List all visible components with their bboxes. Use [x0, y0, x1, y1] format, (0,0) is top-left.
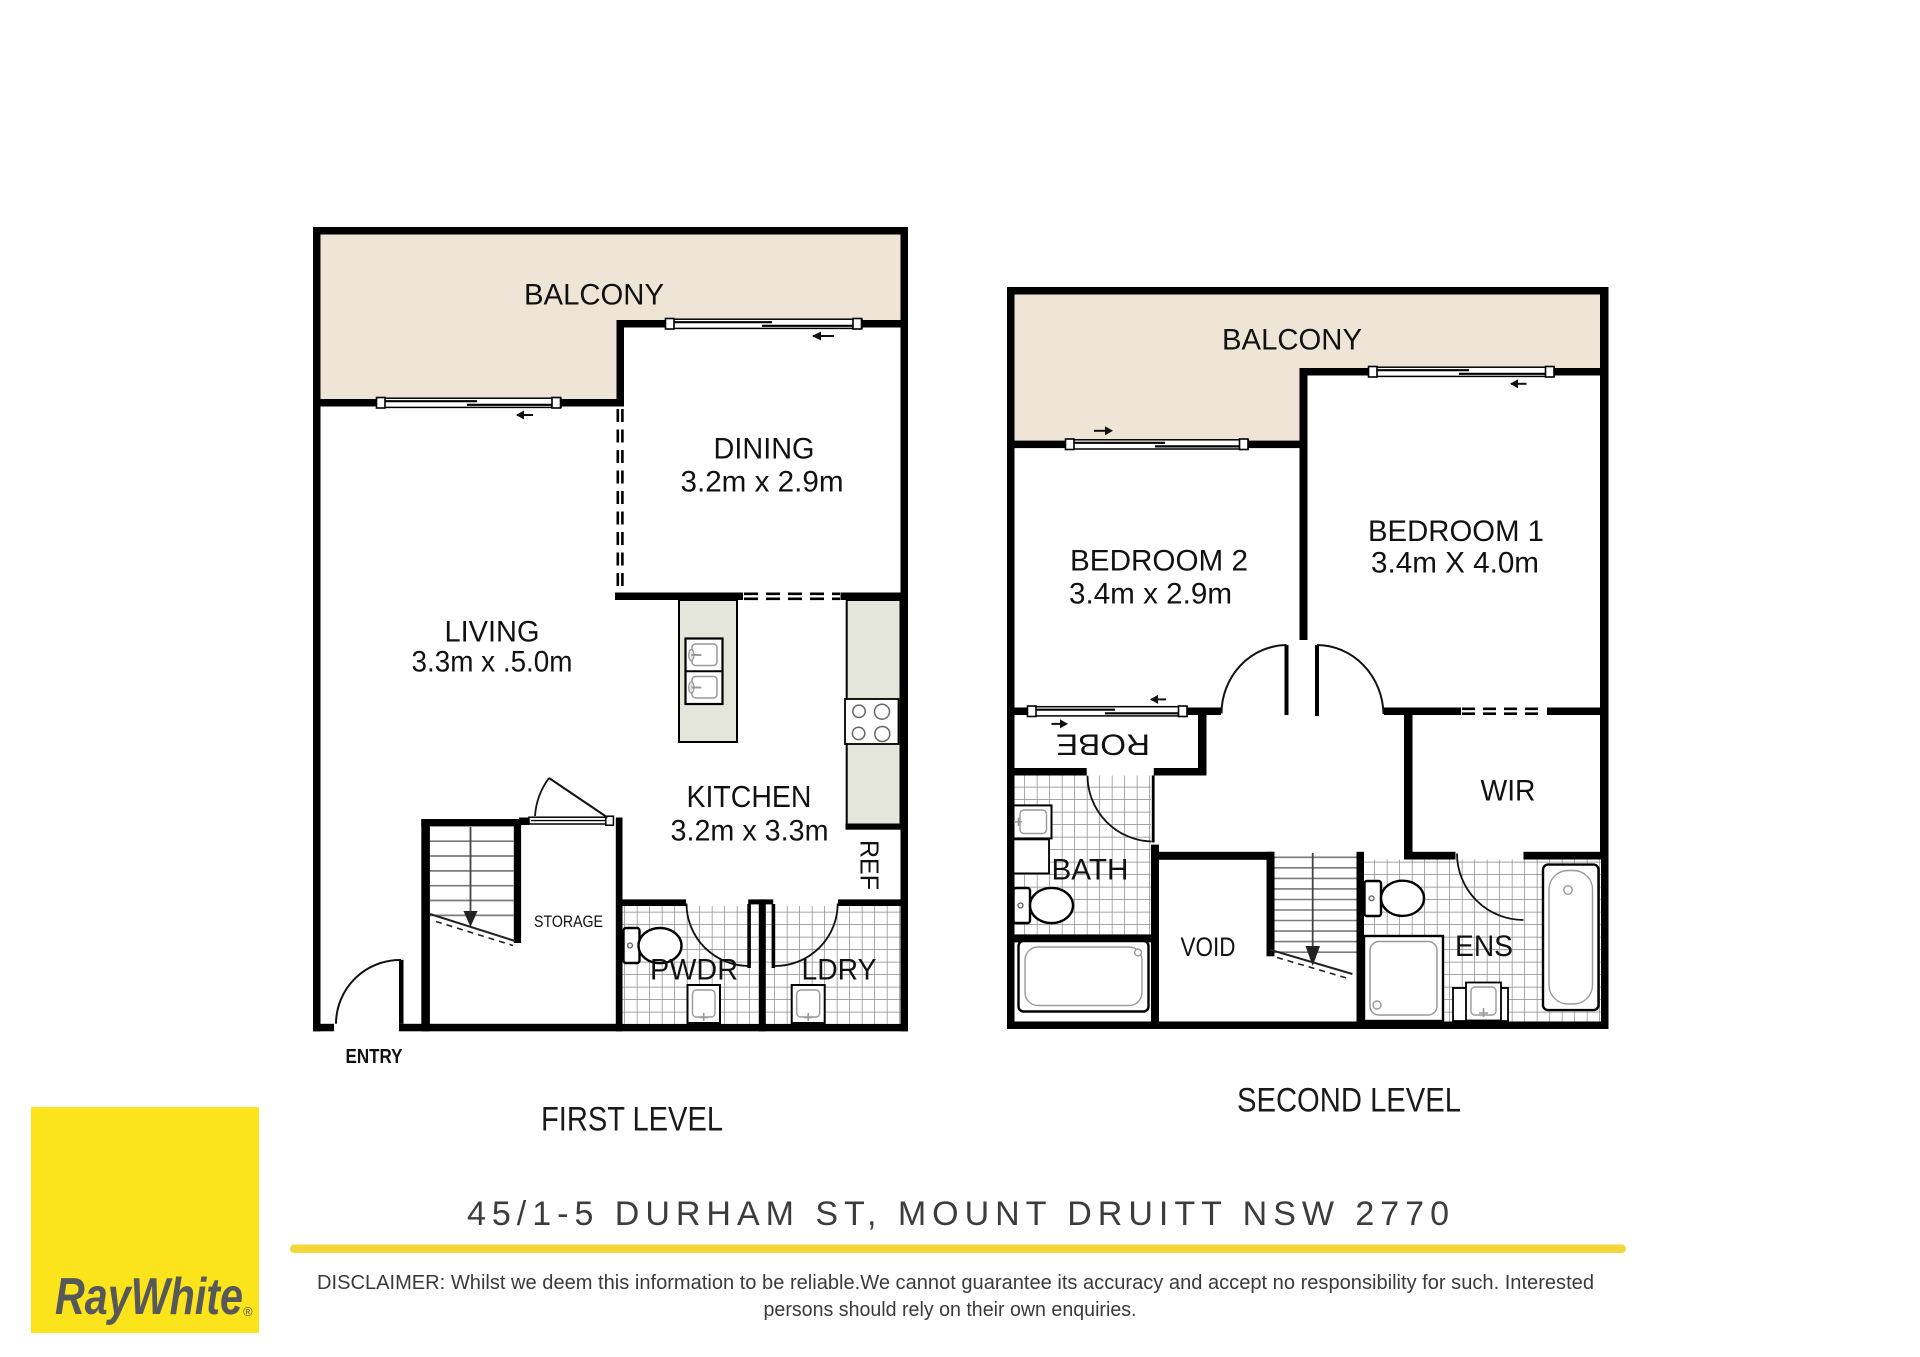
svg-text:BALCONY: BALCONY — [1222, 324, 1362, 357]
svg-text:ENTRY: ENTRY — [346, 1046, 404, 1068]
svg-text:3.2m x 3.3m: 3.2m x 3.3m — [671, 815, 829, 848]
svg-text:3.4m X 4.0m: 3.4m X 4.0m — [1371, 547, 1539, 580]
svg-text:ENS: ENS — [1455, 930, 1513, 963]
svg-text:DINING: DINING — [714, 432, 815, 465]
svg-text:PWDR: PWDR — [650, 954, 738, 987]
svg-text:®: ® — [243, 1304, 253, 1319]
svg-text:SECOND LEVEL: SECOND LEVEL — [1237, 1082, 1461, 1120]
svg-text:3.3m x .5.0m: 3.3m x .5.0m — [412, 646, 573, 679]
svg-text:BALCONY: BALCONY — [524, 279, 664, 312]
svg-text:BEDROOM 2: BEDROOM 2 — [1070, 545, 1248, 578]
svg-text:ROBE: ROBE — [1056, 728, 1150, 761]
svg-text:BATH: BATH — [1052, 854, 1129, 887]
svg-text:WIR: WIR — [1481, 775, 1536, 808]
svg-text:45/1-5 DURHAM ST, MOUNT DRUITT: 45/1-5 DURHAM ST, MOUNT DRUITT NSW 2770 — [467, 1195, 1449, 1233]
svg-text:LIVING: LIVING — [445, 616, 540, 649]
svg-text:VOID: VOID — [1181, 932, 1236, 962]
svg-text:BEDROOM 1: BEDROOM 1 — [1368, 515, 1544, 548]
svg-text:LDRY: LDRY — [802, 954, 877, 987]
svg-text:RayWhite: RayWhite — [55, 1268, 243, 1326]
svg-text:3.2m x 2.9m: 3.2m x 2.9m — [681, 466, 844, 499]
svg-text:persons should rely on their o: persons should rely on their own enquiri… — [764, 1299, 1137, 1321]
svg-text:FIRST LEVEL: FIRST LEVEL — [541, 1101, 723, 1139]
svg-text:DISCLAIMER: Whilst we deem thi: DISCLAIMER: Whilst we deem this informat… — [317, 1272, 1594, 1294]
svg-text:3.4m x 2.9m: 3.4m x 2.9m — [1069, 578, 1232, 611]
svg-text:KITCHEN: KITCHEN — [687, 779, 812, 814]
svg-text:STORAGE: STORAGE — [534, 913, 603, 931]
svg-text:REF: REF — [855, 840, 885, 890]
